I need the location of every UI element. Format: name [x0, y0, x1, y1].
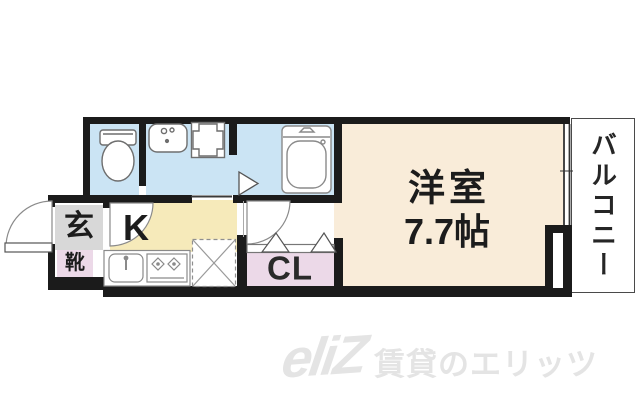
fixtures-layer: [0, 0, 640, 416]
stove-icon: [147, 254, 187, 282]
refrigerator-space-icon: [193, 240, 236, 287]
closet-label: CL: [267, 252, 313, 285]
toilet-icon: [100, 130, 136, 181]
window-icon: [560, 124, 573, 226]
bathtub-icon: [282, 126, 331, 193]
western-room-size: 7.7帖: [404, 214, 490, 250]
kitchen-sink-icon: [109, 254, 143, 282]
pillar: [545, 225, 572, 297]
washer-pan-icon: [192, 123, 225, 158]
shoe-cabinet-label: 靴: [65, 253, 85, 273]
western-room-label: 洋室: [408, 170, 490, 207]
kitchen-counter: [104, 251, 190, 287]
floor-plan: バルコニー: [0, 0, 640, 416]
room-door-swing-icon: [247, 201, 290, 244]
washbasin-icon: [149, 124, 187, 152]
entrance-label: 玄: [64, 212, 94, 242]
kitchen-label: K: [123, 210, 149, 246]
bath-door-icon: [239, 172, 258, 195]
entrance-door-swing-icon: [5, 201, 52, 252]
